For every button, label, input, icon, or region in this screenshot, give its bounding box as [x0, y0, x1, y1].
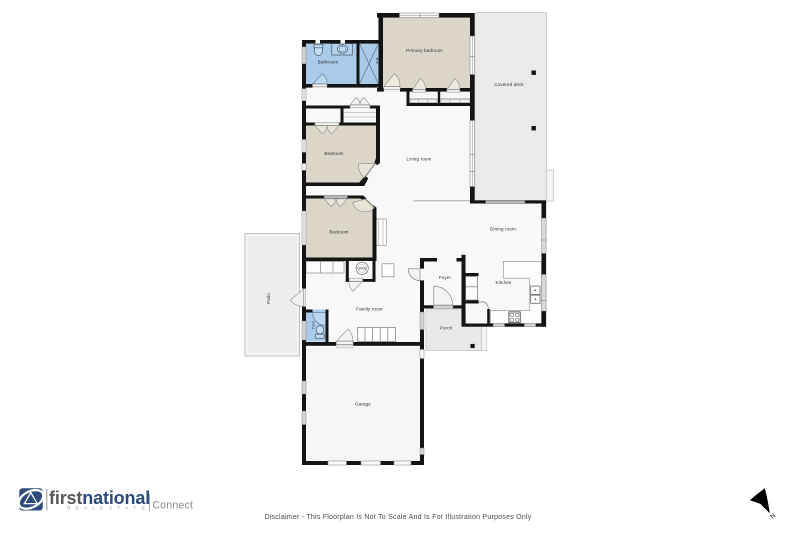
svg-text:Patio: Patio: [266, 293, 271, 304]
svg-text:Toilet: Toilet: [312, 321, 316, 329]
svg-text:Living room: Living room: [407, 157, 432, 162]
svg-text:Foyer: Foyer: [439, 275, 452, 280]
svg-text:Garage: Garage: [355, 402, 371, 407]
svg-text:Family room: Family room: [356, 307, 383, 312]
svg-text:Bedroom: Bedroom: [329, 230, 348, 235]
svg-text:Primary bedroom: Primary bedroom: [406, 48, 443, 53]
svg-text:Utility: Utility: [358, 267, 367, 271]
svg-text:N: N: [769, 512, 777, 521]
svg-text:Kitchen: Kitchen: [495, 280, 511, 285]
svg-text:R E A L E S T A T E: R E A L E S T A T E: [67, 506, 147, 511]
svg-text:Dining room: Dining room: [490, 227, 516, 232]
svg-text:Connect: Connect: [152, 499, 193, 511]
svg-text:Covered deck: Covered deck: [494, 82, 524, 87]
svg-text:Porch: Porch: [440, 326, 453, 331]
svg-text:Disclaimer - This Floorplan Is: Disclaimer - This Floorplan Is Not To Sc…: [264, 513, 531, 521]
svg-text:Bathroom: Bathroom: [318, 60, 339, 65]
svg-text:Bedroom: Bedroom: [324, 151, 343, 156]
